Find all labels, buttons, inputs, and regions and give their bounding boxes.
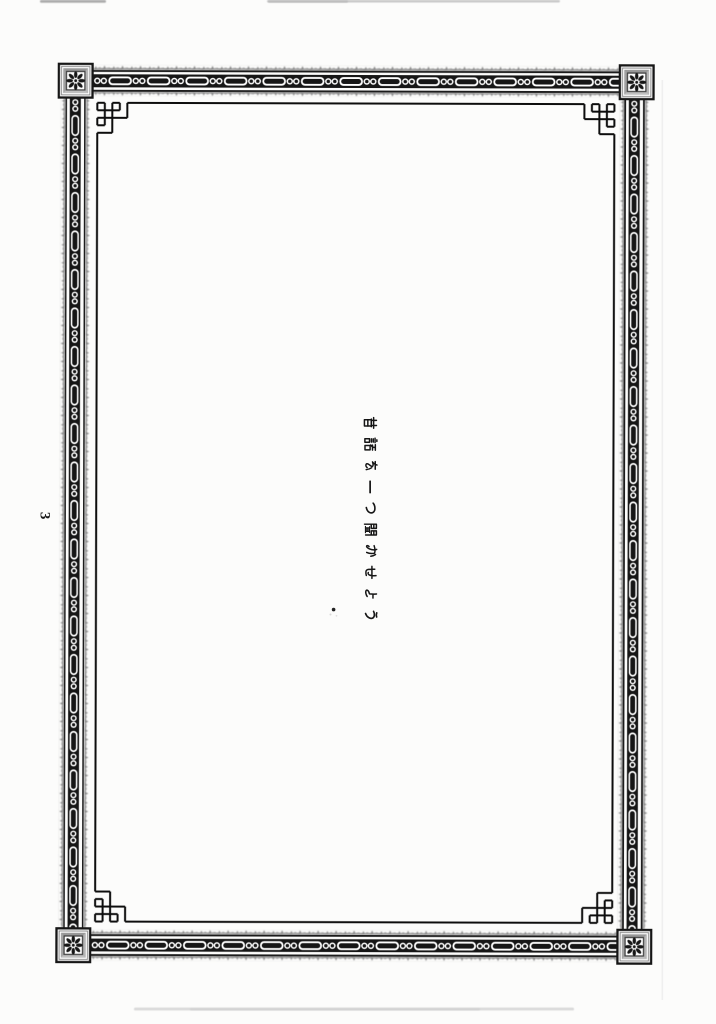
- svg-text:3: 3: [37, 512, 53, 520]
